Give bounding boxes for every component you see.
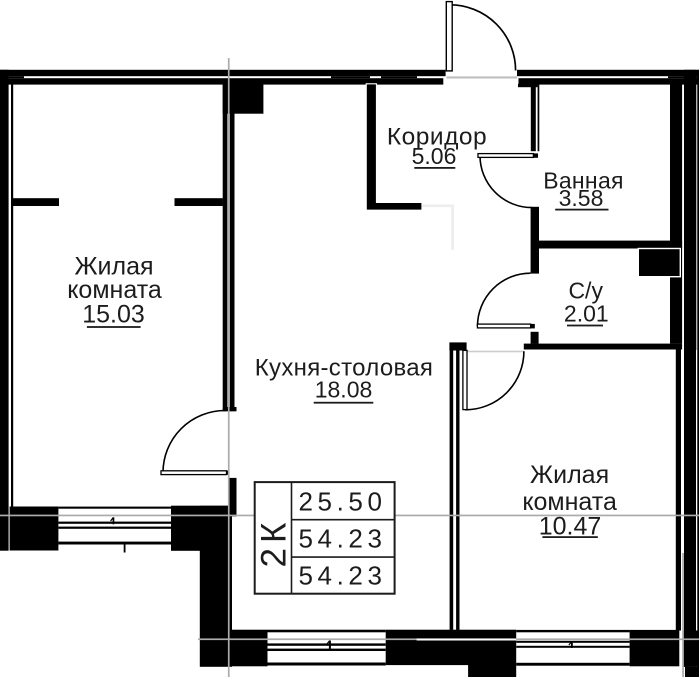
svg-text:5.06: 5.06 bbox=[412, 143, 457, 169]
svg-text:Жилая: Жилая bbox=[530, 461, 609, 489]
svg-text:2.01: 2.01 bbox=[564, 301, 609, 327]
svg-text:15.03: 15.03 bbox=[82, 301, 145, 329]
svg-text:54.23: 54.23 bbox=[298, 561, 386, 591]
svg-text:54.23: 54.23 bbox=[298, 524, 386, 554]
svg-text:25.50: 25.50 bbox=[298, 487, 386, 517]
svg-text:3.58: 3.58 bbox=[559, 185, 604, 211]
svg-text:18.08: 18.08 bbox=[315, 377, 373, 403]
svg-text:2К: 2К bbox=[255, 518, 294, 568]
